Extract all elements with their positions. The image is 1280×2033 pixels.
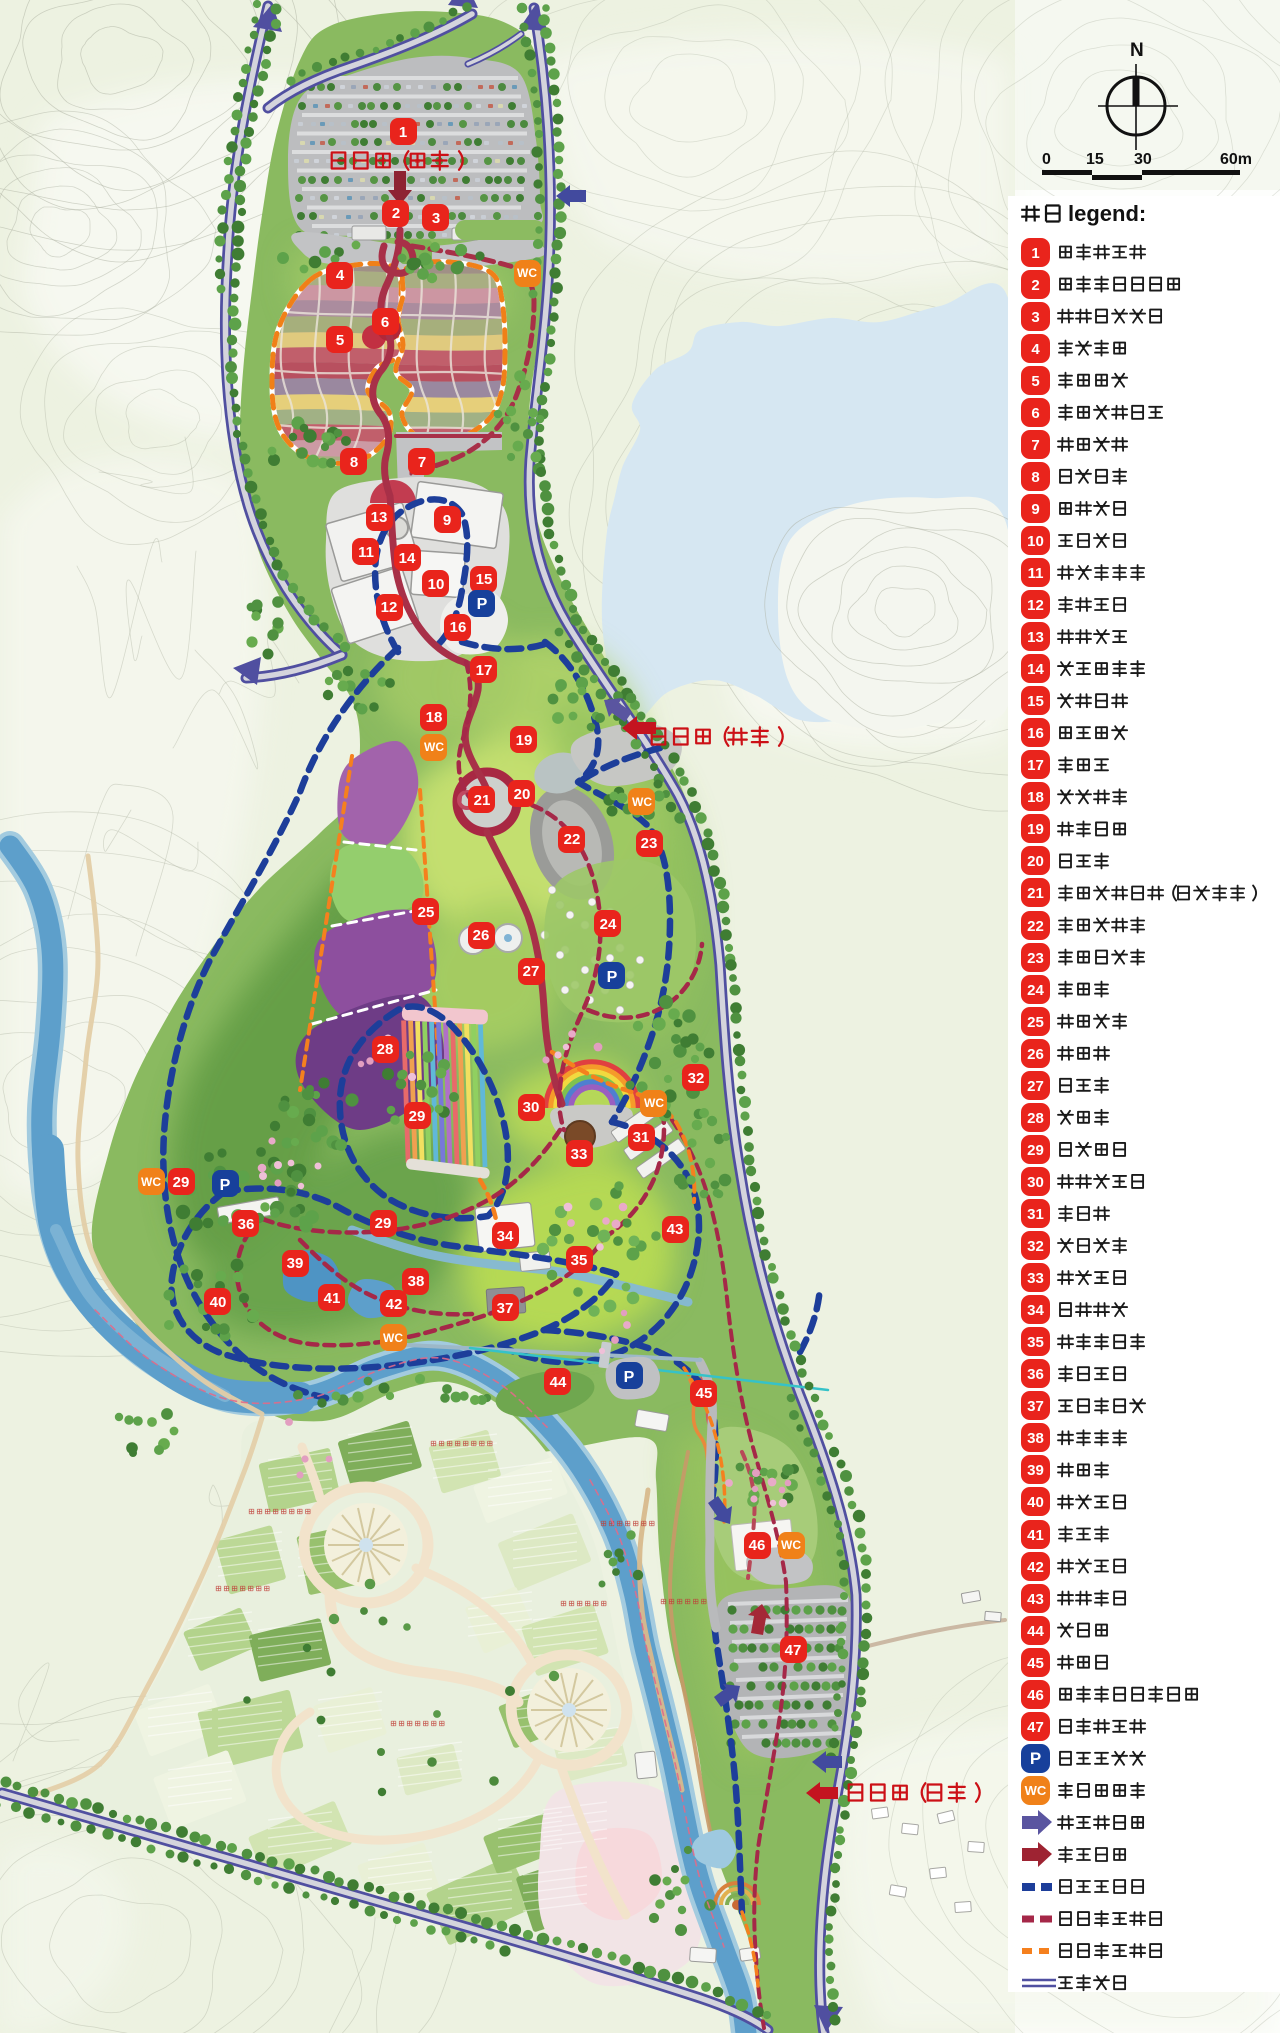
svg-text:2: 2 xyxy=(1031,277,1039,294)
svg-text:36: 36 xyxy=(1027,1366,1044,1383)
svg-text:37: 37 xyxy=(1027,1398,1044,1415)
svg-text:34: 34 xyxy=(1027,1302,1044,1319)
svg-text:10: 10 xyxy=(1027,533,1044,550)
svg-text:9: 9 xyxy=(1031,501,1039,518)
svg-text:47: 47 xyxy=(1027,1719,1044,1736)
svg-text:P: P xyxy=(1030,1749,1041,1768)
svg-text:33: 33 xyxy=(1027,1270,1044,1287)
svg-text:5: 5 xyxy=(1031,373,1039,390)
svg-text:22: 22 xyxy=(1027,918,1044,935)
svg-text:20: 20 xyxy=(1027,853,1044,870)
svg-text:27: 27 xyxy=(1027,1078,1044,1095)
svg-text:19: 19 xyxy=(1027,821,1044,838)
svg-text:31: 31 xyxy=(1027,1206,1044,1223)
svg-text:21: 21 xyxy=(1027,885,1044,902)
svg-text:42: 42 xyxy=(1027,1559,1044,1576)
svg-text:15: 15 xyxy=(1027,693,1044,710)
svg-text:16: 16 xyxy=(1027,725,1044,742)
svg-text:40: 40 xyxy=(1027,1494,1044,1511)
svg-text:30: 30 xyxy=(1027,1174,1044,1191)
svg-text:35: 35 xyxy=(1027,1334,1044,1351)
svg-text:12: 12 xyxy=(1027,597,1044,614)
svg-text:3: 3 xyxy=(1031,309,1039,326)
svg-text:45: 45 xyxy=(1027,1655,1044,1672)
svg-text:43: 43 xyxy=(1027,1591,1044,1608)
svg-text:41: 41 xyxy=(1027,1527,1044,1544)
svg-text:24: 24 xyxy=(1027,982,1044,999)
svg-text:32: 32 xyxy=(1027,1238,1044,1255)
svg-text:4: 4 xyxy=(1031,341,1040,358)
svg-text:29: 29 xyxy=(1027,1142,1044,1159)
svg-text:28: 28 xyxy=(1027,1110,1044,1127)
svg-text:26: 26 xyxy=(1027,1046,1044,1063)
svg-text:46: 46 xyxy=(1027,1687,1044,1704)
svg-text:39: 39 xyxy=(1027,1462,1044,1479)
svg-text:13: 13 xyxy=(1027,629,1044,646)
svg-text:14: 14 xyxy=(1027,661,1044,678)
svg-text:18: 18 xyxy=(1027,789,1044,806)
svg-text:38: 38 xyxy=(1027,1430,1044,1447)
svg-text:17: 17 xyxy=(1027,757,1044,774)
svg-text:23: 23 xyxy=(1027,950,1044,967)
svg-text:1: 1 xyxy=(1031,245,1039,262)
svg-text:7: 7 xyxy=(1031,437,1039,454)
svg-text:11: 11 xyxy=(1028,565,1044,582)
svg-text:25: 25 xyxy=(1027,1014,1044,1031)
svg-text:6: 6 xyxy=(1031,405,1039,422)
svg-text:WC: WC xyxy=(1025,1783,1047,1798)
svg-text:44: 44 xyxy=(1027,1623,1044,1640)
svg-text:8: 8 xyxy=(1031,469,1039,486)
